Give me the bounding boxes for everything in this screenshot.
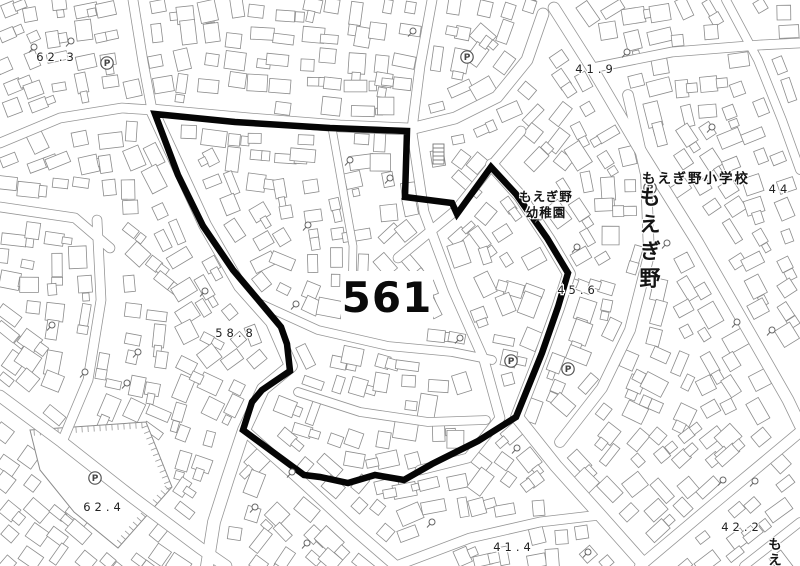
utility-marker-icon bbox=[291, 301, 299, 310]
svg-text:P: P bbox=[565, 365, 572, 375]
utility-marker-icon bbox=[512, 445, 520, 454]
svg-text:P: P bbox=[508, 357, 515, 367]
parking-icon: P bbox=[89, 472, 101, 484]
utility-marker-icon bbox=[767, 327, 775, 336]
utility-marker-icon bbox=[122, 380, 130, 389]
kindergarten-label-line2: 幼稚園 bbox=[519, 205, 573, 221]
elevation-label: 41.4 bbox=[493, 540, 535, 554]
svg-text:P: P bbox=[92, 474, 99, 484]
parking-icon: P bbox=[101, 57, 113, 69]
city-planning-map[interactable]: PPPPPP62.341.94445.658.862.441.442.2 561… bbox=[0, 0, 800, 566]
elevation-label: 44 bbox=[769, 182, 792, 196]
elevation-label: 45.6 bbox=[557, 283, 599, 297]
elevation-label: 41.9 bbox=[575, 62, 617, 76]
parking-icon: P bbox=[461, 51, 473, 63]
edge-partial-label: もえ bbox=[763, 537, 783, 566]
kindergarten-label-line1: もえぎ野 bbox=[519, 189, 573, 205]
parking-icon: P bbox=[505, 355, 517, 367]
elevation-label: 62.4 bbox=[83, 500, 125, 514]
utility-marker-icon bbox=[303, 222, 311, 231]
svg-text:P: P bbox=[464, 53, 471, 63]
utility-marker-icon bbox=[427, 519, 435, 528]
elevation-label: 58.8 bbox=[215, 326, 257, 340]
district-number-label: 561 bbox=[341, 271, 433, 325]
town-name-label: もえぎ野 bbox=[634, 186, 664, 294]
parking-icon: P bbox=[562, 363, 574, 375]
utility-marker-icon bbox=[302, 540, 310, 549]
elevation-label: 62.3 bbox=[36, 50, 78, 64]
stairs-symbol bbox=[433, 144, 444, 164]
utility-marker-icon bbox=[718, 477, 726, 486]
school-name-label: もえぎ野小学校 bbox=[642, 167, 750, 187]
kindergarten-name-label: もえぎ野 幼稚園 bbox=[519, 189, 573, 221]
svg-text:P: P bbox=[104, 59, 111, 69]
elevation-label: 42.2 bbox=[721, 520, 763, 534]
